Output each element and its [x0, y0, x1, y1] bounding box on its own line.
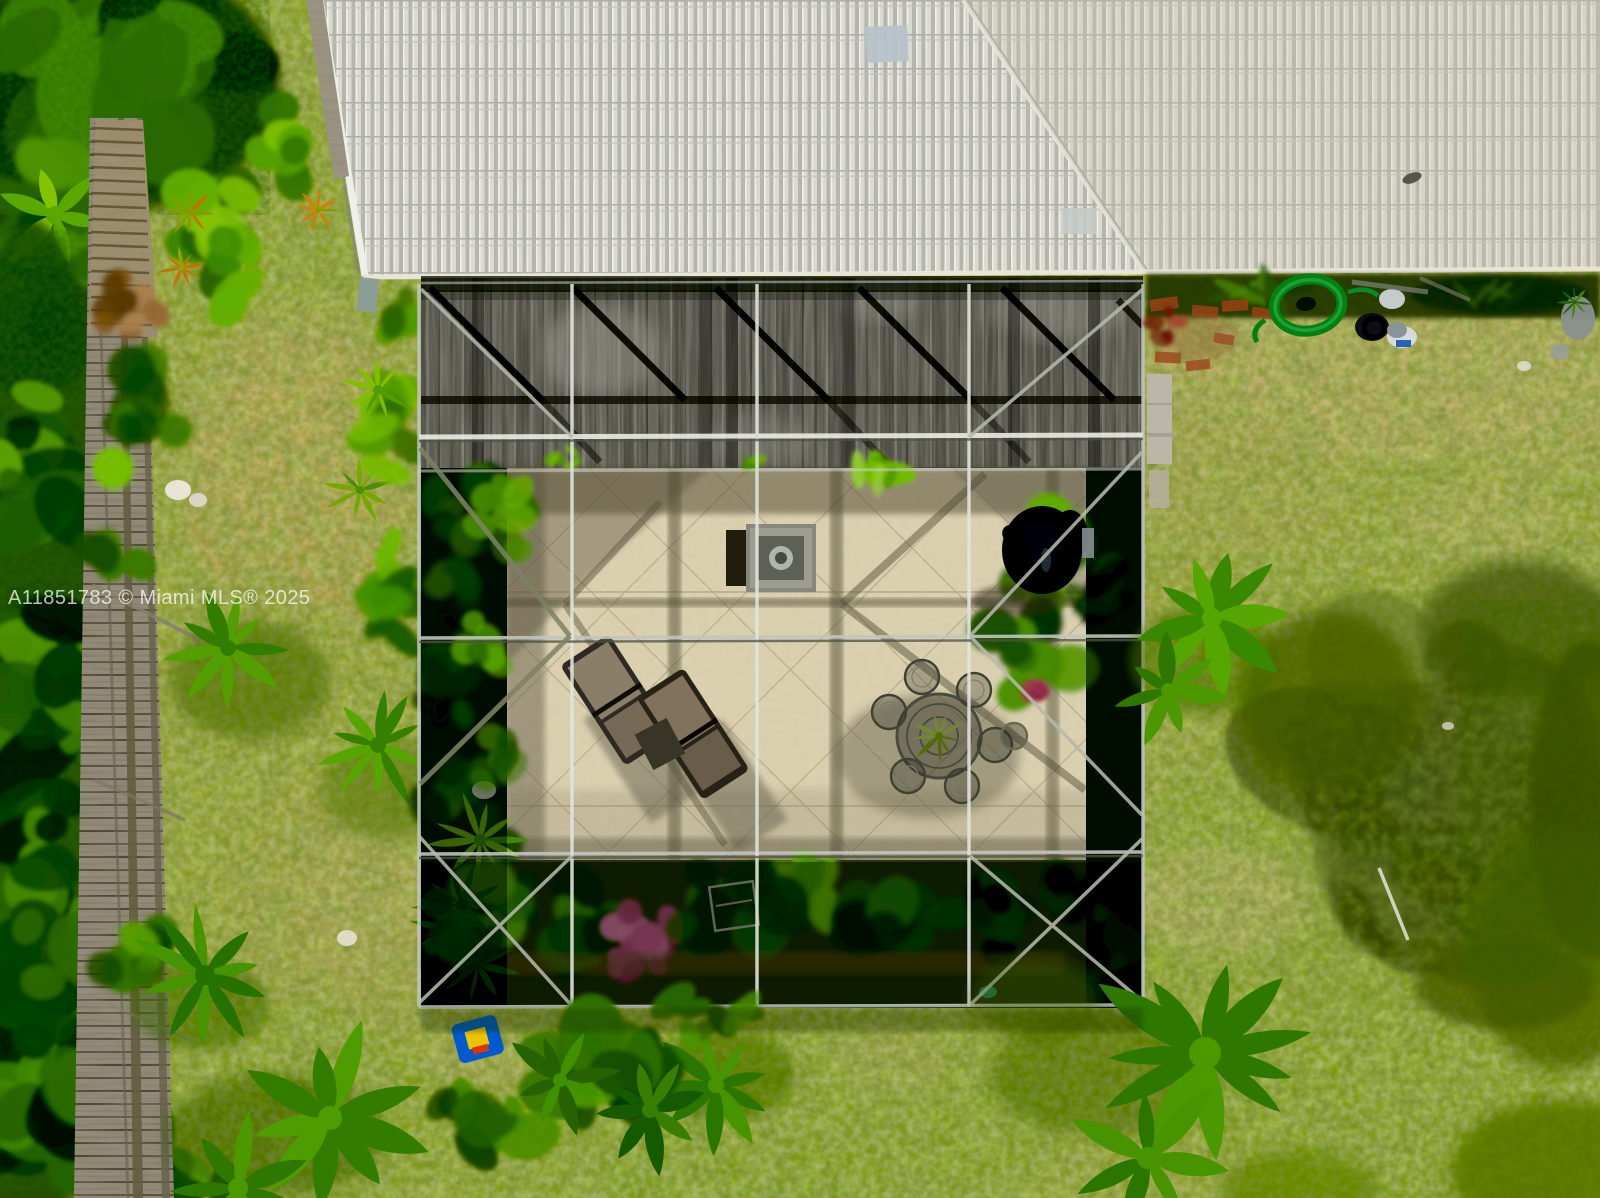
svg-text:A11851783 © Miami MLS® 2025: A11851783 © Miami MLS® 2025 — [8, 587, 310, 609]
